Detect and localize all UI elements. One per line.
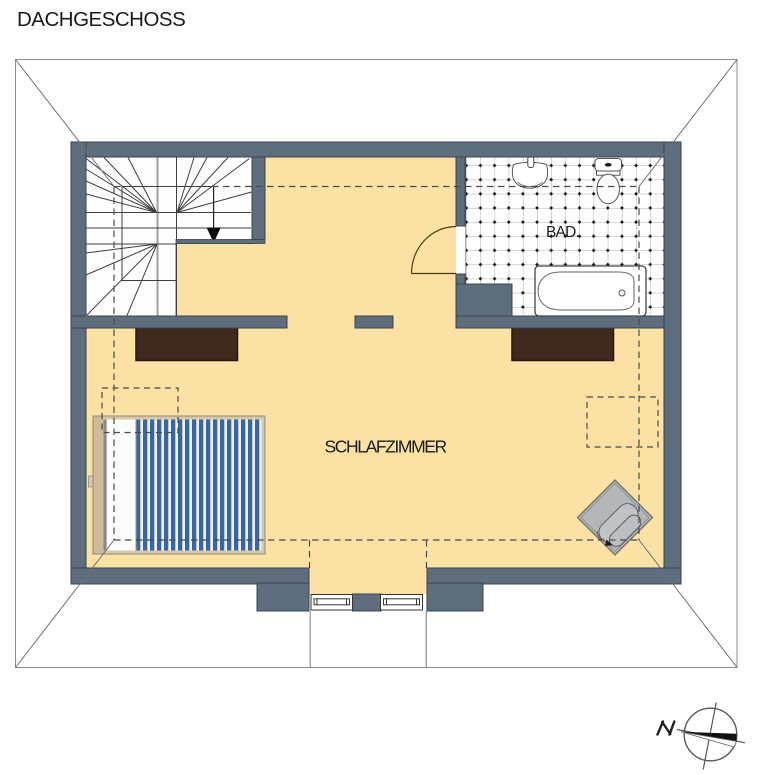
svg-text:SCHLAFZIMMER: SCHLAFZIMMER: [325, 437, 447, 457]
svg-text:BAD.: BAD.: [546, 224, 579, 241]
svg-text:DACHGESCHOSS: DACHGESCHOSS: [17, 8, 185, 31]
